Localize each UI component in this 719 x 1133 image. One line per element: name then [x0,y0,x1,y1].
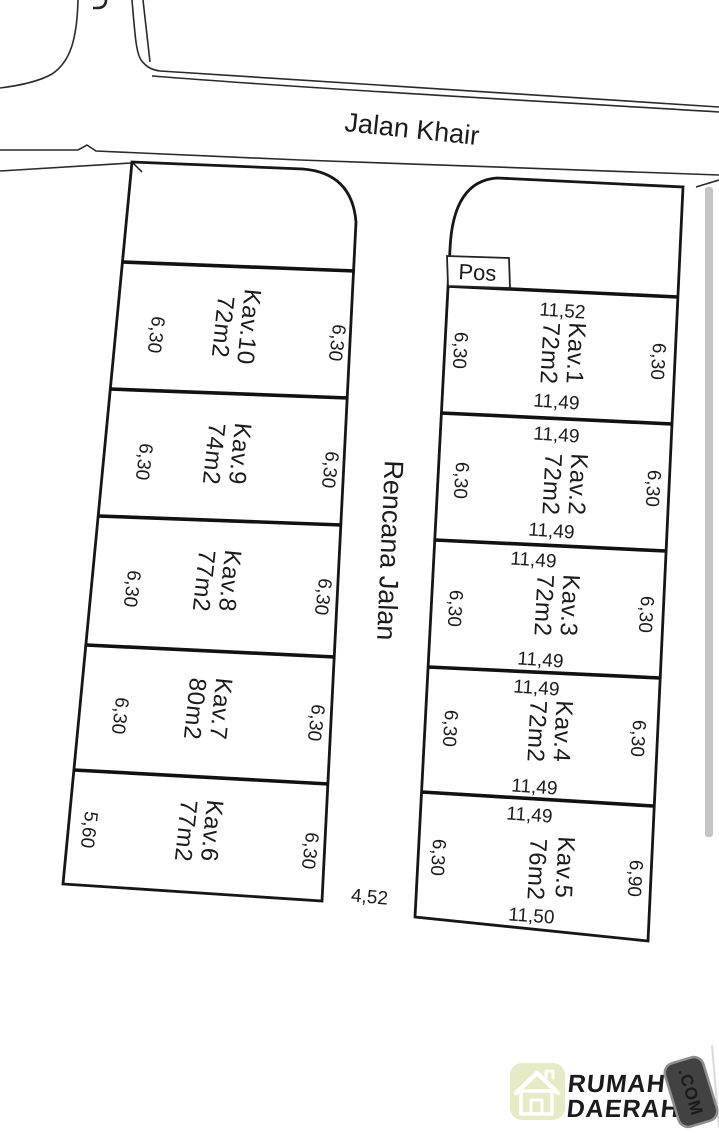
top-road-upper-edge [160,71,719,107]
plot-name: Kav.5 [549,836,579,899]
top-road-right-stub [696,180,719,187]
plot-kav-6: Kav.6 77m2 5,60 6,30 [76,798,322,870]
left-boundary-line [0,163,131,171]
left-divider-5 [74,770,329,784]
plot-kav-8: Kav.8 77m2 6,30 6,30 [119,548,335,616]
top-road-upper-edge-2 [152,76,719,112]
plot-area: 76m2 [521,838,551,901]
dim-top: 11,49 [513,676,560,700]
scrollbar-thumb[interactable] [705,187,713,837]
dim-right: 6,30 [324,323,349,362]
dim-top: 11,49 [510,548,557,572]
dim-left: 6,30 [131,442,156,481]
plot-kav-2: 11,49 Kav.2 72m2 11,49 6,30 6,30 [449,423,665,543]
brand-name-line2: DAERAH [565,1095,681,1123]
plot-area: 72m2 [521,700,551,763]
guard-post: Pos [447,256,510,288]
dim-right: 6,30 [310,577,335,616]
plot-kav-9: Kav.9 74m2 6,30 6,30 [131,421,342,489]
dim-left: 6,30 [438,709,462,747]
plot-area: 80m2 [178,677,211,742]
brand-logo: RUMAH DAERAH .COM [510,1055,719,1130]
plot-area: 77m2 [169,799,202,864]
dim-left: 6,30 [443,589,467,627]
dim-bottom: 11,49 [533,390,580,414]
left-divider-2 [110,389,348,398]
right-block: 11,52 Kav.1 72m2 11,49 6,30 6,30 11,49 K… [415,178,683,941]
dim-top: 11,49 [533,423,580,447]
vertical-road-inner-line [143,0,150,62]
dim-left: 6,30 [448,331,472,369]
dim-right: 6,30 [317,450,342,489]
plot-area: 72m2 [534,322,564,385]
dim-top: 11,52 [539,299,586,323]
road-label-jalan-khair: Jalan Khair [343,107,480,151]
vertical-road-left-edge [0,0,78,88]
plot-area: 74m2 [197,422,230,487]
dim-right: 6,30 [297,831,322,870]
dim-right: 6,30 [641,469,665,507]
plot-kav-7: Kav.7 80m2 6,30 6,30 [107,676,328,742]
plot-area: 72m2 [528,574,558,637]
plot-area: 77m2 [187,549,220,614]
dim-left: 6,30 [119,569,144,608]
dim-left: 5,60 [76,810,101,849]
dim-left: 6,30 [107,696,132,735]
dim-bottom: 11,49 [517,648,564,672]
left-block: Kav.10 72m2 6,30 6,30 Kav.9 74m2 6,30 6,… [63,162,356,901]
cutoff-letter-glyph [93,0,106,8]
dim-bottom: 11,49 [511,775,558,799]
plot-kav-4: 11,49 Kav.4 72m2 11,49 6,30 6,30 [438,676,650,799]
road-label-rencana-jalan: Rencana Jalan [371,460,409,641]
pos-label: Pos [458,259,497,286]
left-divider-3 [98,516,342,525]
left-divider-4 [86,645,335,657]
top-road-lower-edge [0,145,719,175]
right-divider-2 [441,413,672,424]
dim-left: 6,30 [143,315,168,354]
dim-right: 6,30 [634,595,658,633]
plot-kav-5: 11,49 Kav.5 76m2 11,50 6,30 6,90 [426,803,647,928]
plot-kav-3: 11,49 Kav.3 72m2 11,49 6,30 6,30 [443,548,658,672]
left-block-outline [63,162,356,901]
dim-left: 6,30 [426,838,450,876]
dim-top: 11,49 [506,803,553,827]
left-divider-1 [122,262,355,271]
plot-area: 72m2 [206,295,239,360]
plot-area: 72m2 [536,453,566,516]
road-end-width-label: 4,52 [350,885,389,909]
dim-right: 6,30 [646,342,670,380]
dim-right: 6,30 [303,703,328,742]
dim-bottom: 11,50 [508,904,555,928]
dim-right: 6,90 [623,859,647,897]
vertical-road-right-edge [132,0,160,71]
road-linework [0,0,719,187]
plot-kav-10: Kav.10 72m2 6,30 6,30 [143,288,349,366]
dim-left: 6,30 [449,461,473,499]
site-plan-drawing: Kav.10 72m2 6,30 6,30 Kav.9 74m2 6,30 6,… [0,0,719,1133]
road-labels: Jalan Khair Rencana Jalan 4,52 [343,107,480,910]
dim-right: 6,30 [626,719,650,757]
site-plan-page: Kav.10 72m2 6,30 6,30 Kav.9 74m2 6,30 6,… [0,0,719,1133]
brand-name-line1: RUMAH [566,1070,667,1098]
dim-bottom: 11,49 [528,519,575,543]
plot-kav-1: 11,52 Kav.1 72m2 11,49 6,30 6,30 [448,299,670,414]
